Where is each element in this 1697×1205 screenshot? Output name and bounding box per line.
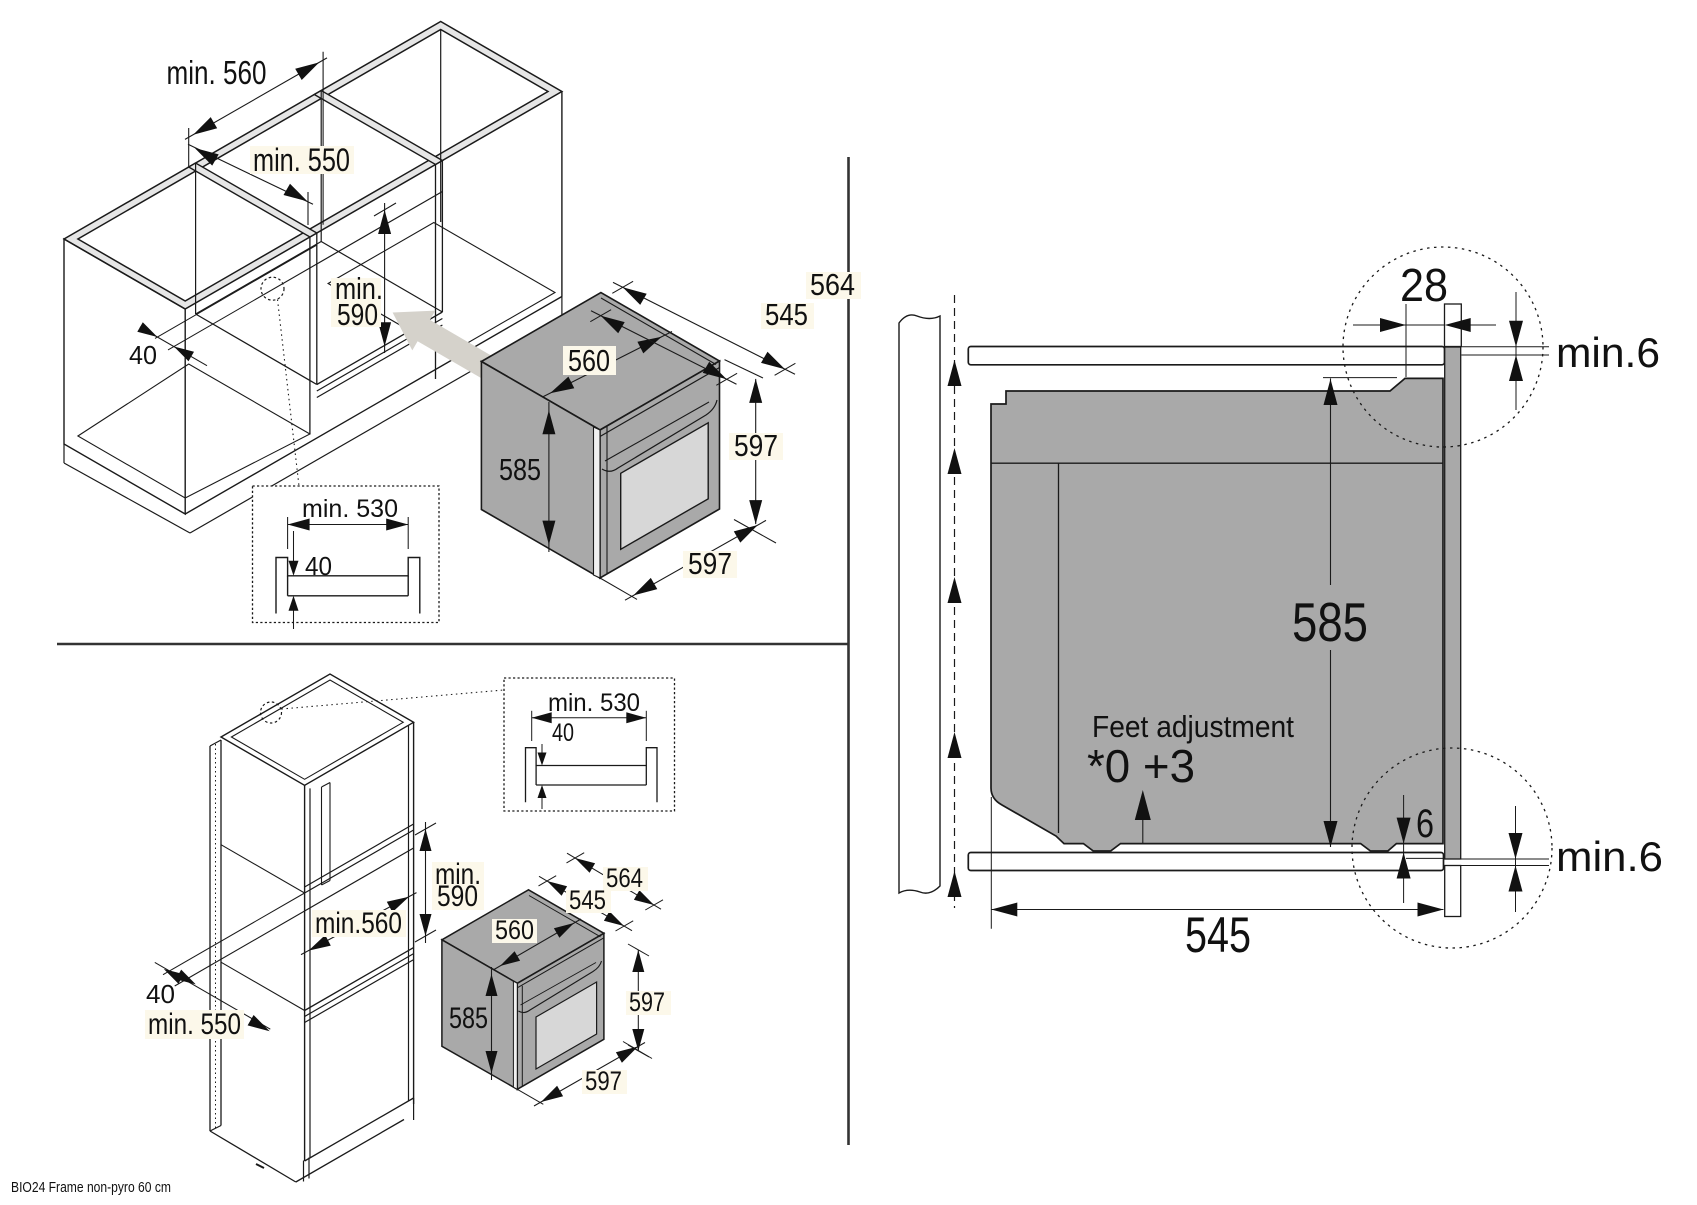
svg-text:min. 550: min. 550 — [148, 1008, 241, 1041]
svg-text:min.6: min.6 — [1556, 833, 1663, 880]
svg-text:Feet adjustment: Feet adjustment — [1092, 709, 1294, 744]
svg-text:597: 597 — [585, 1066, 622, 1096]
svg-text:40: 40 — [552, 719, 574, 747]
svg-text:545: 545 — [569, 885, 606, 915]
svg-text:min. 530: min. 530 — [302, 495, 398, 523]
svg-text:min. 560: min. 560 — [167, 54, 267, 91]
svg-text:597: 597 — [688, 546, 732, 581]
svg-text:40: 40 — [146, 979, 175, 1009]
svg-text:min.6: min.6 — [1556, 329, 1660, 376]
svg-text:585: 585 — [449, 1002, 488, 1035]
svg-text:585: 585 — [499, 452, 541, 487]
svg-text:590: 590 — [437, 880, 478, 913]
svg-text:597: 597 — [734, 428, 778, 463]
svg-text:*0 +3: *0 +3 — [1087, 740, 1195, 792]
svg-text:545: 545 — [765, 297, 808, 332]
svg-text:28: 28 — [1400, 259, 1448, 311]
svg-text:40: 40 — [129, 340, 157, 370]
svg-text:564: 564 — [810, 267, 855, 302]
svg-text:BIO24 Frame non-pyro 60 cm: BIO24 Frame non-pyro 60 cm — [11, 1180, 171, 1196]
svg-text:min. 550: min. 550 — [253, 142, 350, 178]
svg-text:min.560: min.560 — [315, 907, 402, 940]
svg-text:560: 560 — [495, 915, 534, 945]
svg-text:590: 590 — [337, 297, 378, 332]
svg-text:597: 597 — [629, 987, 665, 1017]
svg-text:40: 40 — [305, 551, 332, 581]
svg-text:min. 530: min. 530 — [548, 689, 640, 717]
svg-text:585: 585 — [1292, 591, 1368, 653]
svg-text:560: 560 — [568, 343, 610, 378]
svg-text:564: 564 — [606, 863, 643, 893]
svg-text:545: 545 — [1185, 907, 1251, 963]
svg-text:6: 6 — [1416, 802, 1434, 846]
